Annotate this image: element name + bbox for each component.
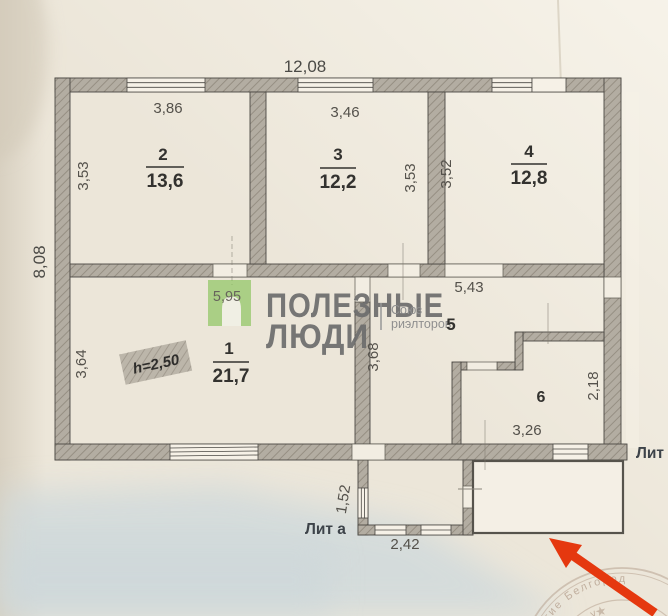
watermark-sub-line1: Союз (391, 303, 422, 317)
room-area: 12,2 (320, 172, 357, 193)
window (375, 525, 406, 535)
room-number: 1 (224, 339, 233, 358)
dim-room1-top: 5,95 (213, 289, 241, 305)
dim-room3-side: 3,53 (402, 163, 419, 192)
wall (55, 78, 70, 460)
wall (604, 78, 621, 460)
dim-room4-side: 3,52 (438, 159, 455, 188)
litera-annex-label: Лит а (305, 521, 346, 538)
window (553, 444, 588, 460)
room-label-6: 6 (537, 389, 546, 406)
dim-room1-side: 3,64 (73, 349, 90, 378)
window (127, 78, 205, 92)
dim-room5-top: 5,43 (454, 279, 483, 296)
dim-overall-width: 12,08 (284, 57, 327, 76)
window (358, 488, 368, 518)
wall (55, 444, 627, 460)
room-number: 2 (158, 145, 167, 164)
litera-right-label: Лит (636, 445, 664, 462)
room-label-5: 5 (446, 315, 455, 334)
dim-room3-top: 3,46 (330, 104, 359, 121)
door-opening (388, 264, 420, 277)
room-number: 3 (333, 145, 342, 164)
room-area: 21,7 (213, 366, 250, 387)
wall (70, 264, 604, 277)
paper-crease (626, 92, 639, 448)
wall (497, 362, 515, 370)
wall (515, 332, 523, 370)
dim-room6-side: 2,18 (585, 371, 602, 400)
watermark-sub-line2: риэлторов (391, 317, 452, 331)
room-area: 12,8 (511, 168, 548, 189)
dim-overall-height: 8,08 (30, 245, 49, 278)
wall (523, 332, 604, 341)
blue-shadow (0, 545, 330, 616)
dim-room2-top: 3,86 (153, 100, 182, 117)
porch-outline (473, 461, 623, 533)
floorplan-photo: ПОЛЕЗНЫЕ ЛЮДИ Союз риэлторов 12,08 8,08 … (0, 0, 668, 616)
door-opening (445, 264, 503, 277)
floorplan-svg: ПОЛЕЗНЫЕ ЛЮДИ Союз риэлторов 12,08 8,08 … (0, 0, 668, 616)
wall (452, 362, 461, 444)
door-opening (467, 362, 497, 370)
watermark-brand-line2: ЛЮДИ (266, 318, 369, 356)
room-number: 4 (524, 142, 534, 161)
dim-room2-side: 3,53 (75, 161, 92, 190)
window (421, 525, 451, 535)
window (492, 78, 566, 92)
window (298, 78, 373, 92)
room-area: 13,6 (147, 171, 184, 192)
dim-room6-bottom: 3,26 (512, 422, 541, 439)
dim-annex-bottom: 2,42 (390, 536, 419, 553)
window (170, 444, 258, 460)
door-opening (604, 277, 621, 298)
dim-room5-side: 3,68 (365, 342, 382, 371)
door-opening (213, 264, 247, 277)
wall (250, 92, 266, 264)
door-opening (352, 444, 385, 460)
